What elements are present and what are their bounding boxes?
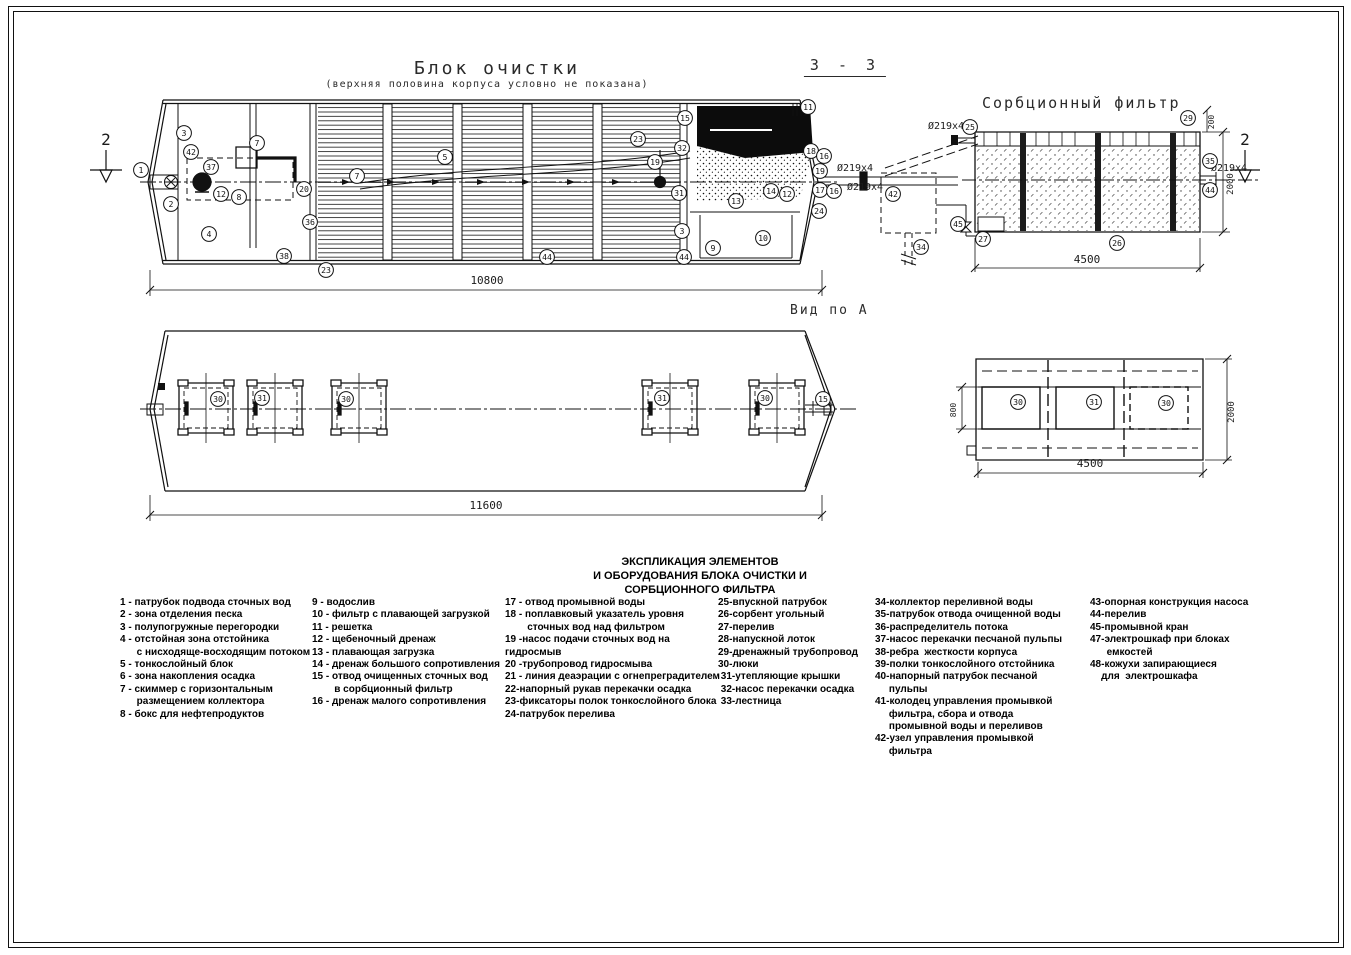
svg-text:7: 7: [255, 138, 260, 148]
callout-10: 10: [756, 231, 771, 246]
callout-5: 5: [438, 150, 453, 165]
legend-item: 43-опорная конструкция насоса: [1090, 597, 1300, 609]
legend-heading: ЭКСПЛИКАЦИЯ ЭЛЕМЕНТОВ И ОБОРУДОВАНИЯ БЛО…: [520, 556, 880, 598]
legend-item: 42-узел управления промывкой фильтра: [875, 733, 1073, 758]
svg-text:12: 12: [782, 189, 792, 199]
callout-13: 13: [729, 194, 744, 209]
callout-7: 7: [250, 136, 265, 151]
legend-item: 35-патрубок отвода очищенной воды: [875, 609, 1073, 621]
dim-label: 4500: [1074, 253, 1101, 266]
dim-label: 2000: [1226, 173, 1236, 195]
callout-25: 25: [963, 120, 978, 135]
callout-3: 3: [177, 126, 192, 141]
legend-item: 45-промывной кран: [1090, 622, 1300, 634]
legend-col-6: 43-опорная конструкция насоса44-перелив4…: [1090, 597, 1300, 684]
callout-27: 27: [976, 232, 991, 247]
svg-text:19: 19: [650, 157, 660, 167]
svg-text:24: 24: [814, 206, 824, 216]
svg-text:31: 31: [674, 188, 684, 198]
legend-col-5: 34-коллектор переливной воды35-патрубок …: [875, 597, 1073, 758]
svg-text:44: 44: [542, 252, 552, 262]
legend-item: 19 -насос подачи сточных вод на гидросмы…: [505, 634, 720, 659]
legend-item: 2 - зона отделения песка: [120, 609, 315, 621]
legend-item: 37-насос перекачки песчаной пульпы: [875, 634, 1073, 646]
dim-label: 4500: [1077, 457, 1104, 470]
callout-38: 38: [277, 249, 292, 264]
svg-text:30: 30: [213, 394, 223, 404]
callout-19: 19: [648, 155, 663, 170]
svg-text:19: 19: [815, 166, 825, 176]
callout-9: 9: [706, 241, 721, 256]
legend-item: 32-насос перекачки осадка: [718, 684, 878, 696]
legend-item: 39-полки тонкослойного отстойника: [875, 659, 1073, 671]
svg-text:27: 27: [978, 234, 988, 244]
legend-item: 20 -трубопровод гидросмыва: [505, 659, 720, 671]
plan-view-drawing: [140, 331, 858, 521]
callout-44: 44: [540, 250, 555, 265]
legend-item: 38-ребра жесткости корпуса: [875, 647, 1073, 659]
callout-16: 16: [817, 149, 832, 164]
legend-item: 48-кожухи запирающиеся для электрошкафа: [1090, 659, 1300, 684]
legend-item: 12 - щебеночный дренаж: [312, 634, 504, 646]
callout-31: 31: [672, 186, 687, 201]
svg-text:23: 23: [321, 265, 331, 275]
callout-12: 12: [780, 187, 795, 202]
legend-item: 3 - полупогружные перегородки: [120, 622, 315, 634]
svg-text:8: 8: [237, 192, 242, 202]
legend-item: 31-утепляющие крышки: [718, 671, 878, 683]
callout-37: 37: [204, 160, 219, 175]
callout-29: 29: [1181, 111, 1196, 126]
legend-item: 10 - фильтр с плавающей загрузкой: [312, 609, 504, 621]
callout-16: 16: [827, 184, 842, 199]
svg-text:34: 34: [916, 242, 926, 252]
legend-item: 18 - поплавковый указатель уровня сточны…: [505, 609, 720, 634]
svg-text:10: 10: [758, 233, 768, 243]
legend-item: 17 - отвод промывной воды: [505, 597, 720, 609]
legend-item: 21 - линия деаэрации с огнепреградителем: [505, 671, 720, 683]
dim-label: Ø219x4: [928, 120, 964, 132]
legend-item: 29-дренажный трубопровод: [718, 647, 878, 659]
svg-text:31: 31: [657, 393, 667, 403]
svg-text:20: 20: [299, 184, 309, 194]
legend-item: 1 - патрубок подвода сточных вод: [120, 597, 315, 609]
legend-item: 36-распределитель потока: [875, 622, 1073, 634]
svg-text:5: 5: [443, 152, 448, 162]
callout-42: 42: [184, 145, 199, 160]
callout-15: 15: [678, 111, 693, 126]
legend-item: 22-напорный рукав перекачки осадка: [505, 684, 720, 696]
svg-text:36: 36: [305, 217, 315, 227]
callout-7: 7: [350, 169, 365, 184]
dim-label: 11600: [469, 499, 502, 512]
legend-col-1: 1 - патрубок подвода сточных вод2 - зона…: [120, 597, 315, 721]
svg-text:26: 26: [1112, 238, 1122, 248]
legend-item: 5 - тонкослойный блок: [120, 659, 315, 671]
legend-item: 33-лестница: [718, 696, 878, 708]
svg-text:18: 18: [806, 146, 816, 156]
callout-31: 31: [255, 391, 270, 406]
dim-label: Ø219x4: [847, 181, 883, 193]
callout-20: 20: [297, 182, 312, 197]
svg-text:14: 14: [766, 186, 776, 196]
legend-item: 11 - решетка: [312, 622, 504, 634]
callout-17: 17: [813, 183, 828, 198]
dim-label: 2: [1240, 130, 1250, 149]
legend-item: 23-фиксаторы полок тонкослойного блока: [505, 696, 720, 708]
callout-23: 23: [319, 263, 334, 278]
callout-14: 14: [764, 184, 779, 199]
legend-item: 34-коллектор переливной воды: [875, 597, 1073, 609]
svg-text:1: 1: [139, 165, 144, 175]
legend-item: 47-электрошкаф при блоках емкостей: [1090, 634, 1300, 659]
callout-35: 35: [1203, 154, 1218, 169]
svg-text:3: 3: [680, 226, 685, 236]
svg-text:3: 3: [182, 128, 187, 138]
svg-text:30: 30: [1161, 398, 1171, 408]
legend-item: 30-люки: [718, 659, 878, 671]
svg-text:35: 35: [1205, 156, 1215, 166]
callout-32: 32: [675, 141, 690, 156]
svg-text:32: 32: [677, 143, 687, 153]
svg-text:30: 30: [760, 393, 770, 403]
callout-26: 26: [1110, 236, 1125, 251]
svg-text:31: 31: [257, 393, 267, 403]
legend-item: 41-колодец управления промывкой фильтра,…: [875, 696, 1073, 733]
svg-text:44: 44: [1205, 185, 1215, 195]
drawing-svg: 10800116004500450020002002000800Ø219x4Ø2…: [0, 0, 1351, 955]
callout-36: 36: [303, 215, 318, 230]
callout-42: 42: [886, 187, 901, 202]
legend-col-4: 25-впускной патрубок26-сорбент угольный2…: [718, 597, 878, 709]
callout-34: 34: [914, 240, 929, 255]
callout-45: 45: [951, 217, 966, 232]
svg-text:15: 15: [818, 394, 828, 404]
callout-44: 44: [677, 250, 692, 265]
callout-23: 23: [631, 132, 646, 147]
callout-30: 30: [1159, 396, 1174, 411]
drawing-sheet: Блок очистки (верхняя половина корпуса у…: [0, 0, 1351, 955]
legend-item: 4 - отстойная зона отстойника с нисходящ…: [120, 634, 315, 659]
legend-item: 44-перелив: [1090, 609, 1300, 621]
svg-text:9: 9: [711, 243, 716, 253]
dim-label: Ø219x4: [837, 162, 873, 174]
svg-text:4: 4: [207, 229, 212, 239]
svg-text:17: 17: [815, 185, 825, 195]
svg-text:2: 2: [169, 199, 174, 209]
callout-30: 30: [211, 392, 226, 407]
callout-31: 31: [1087, 395, 1102, 410]
callout-11: 11: [801, 100, 816, 115]
callout-4: 4: [202, 227, 217, 242]
svg-text:16: 16: [829, 186, 839, 196]
legend-item: 9 - водослив: [312, 597, 504, 609]
legend-item: 7 - скиммер с горизонтальным размещением…: [120, 684, 315, 709]
svg-text:42: 42: [186, 147, 196, 157]
legend-item: 13 - плавающая загрузка: [312, 647, 504, 659]
dim-label: 800: [949, 403, 958, 418]
legend-item: 15 - отвод очищенных сточных вод в сорбц…: [312, 671, 504, 696]
dim-label: 200: [1207, 115, 1216, 130]
legend-item: 14 - дренаж большого сопротивления: [312, 659, 504, 671]
legend-item: 24-патрубок перелива: [505, 709, 720, 721]
callout-3: 3: [675, 224, 690, 239]
svg-text:29: 29: [1183, 113, 1193, 123]
dim-label: 2000: [1227, 401, 1237, 423]
legend-col-2: 9 - водослив10 - фильтр с плавающей загр…: [312, 597, 504, 709]
svg-text:7: 7: [355, 171, 360, 181]
callout-30: 30: [1011, 395, 1026, 410]
legend-item: 27-перелив: [718, 622, 878, 634]
svg-text:16: 16: [819, 151, 829, 161]
callout-30: 30: [758, 391, 773, 406]
svg-text:13: 13: [731, 196, 741, 206]
svg-text:30: 30: [341, 394, 351, 404]
svg-text:11: 11: [803, 102, 813, 112]
legend-item: 8 - бокс для нефтепродуктов: [120, 709, 315, 721]
callout-30: 30: [339, 392, 354, 407]
svg-text:30: 30: [1013, 397, 1023, 407]
callout-12: 12: [214, 187, 229, 202]
callout-15: 15: [816, 392, 831, 407]
callout-44: 44: [1203, 183, 1218, 198]
dim-label: 2: [101, 130, 111, 149]
svg-text:38: 38: [279, 251, 289, 261]
callout-8: 8: [232, 190, 247, 205]
callout-24: 24: [812, 204, 827, 219]
svg-text:25: 25: [965, 122, 975, 132]
svg-text:44: 44: [679, 252, 689, 262]
svg-text:42: 42: [888, 189, 898, 199]
callout-2: 2: [164, 197, 179, 212]
legend-item: 6 - зона накопления осадка: [120, 671, 315, 683]
svg-text:37: 37: [206, 162, 216, 172]
legend-item: 28-напускной лоток: [718, 634, 878, 646]
legend-item: 25-впускной патрубок: [718, 597, 878, 609]
callout-19: 19: [813, 164, 828, 179]
svg-text:23: 23: [633, 134, 643, 144]
legend-item: 40-напорный патрубок песчаной пульпы: [875, 671, 1073, 696]
dim-label: 10800: [470, 274, 503, 287]
callout-31: 31: [655, 391, 670, 406]
svg-text:15: 15: [680, 113, 690, 123]
legend-item: 26-сорбент угольный: [718, 609, 878, 621]
legend-col-3: 17 - отвод промывной воды18 - поплавковы…: [505, 597, 720, 721]
legend-item: 16 - дренаж малого сопротивления: [312, 696, 504, 708]
callout-1: 1: [134, 163, 149, 178]
svg-text:12: 12: [216, 189, 226, 199]
svg-text:31: 31: [1089, 397, 1099, 407]
svg-text:45: 45: [953, 219, 963, 229]
